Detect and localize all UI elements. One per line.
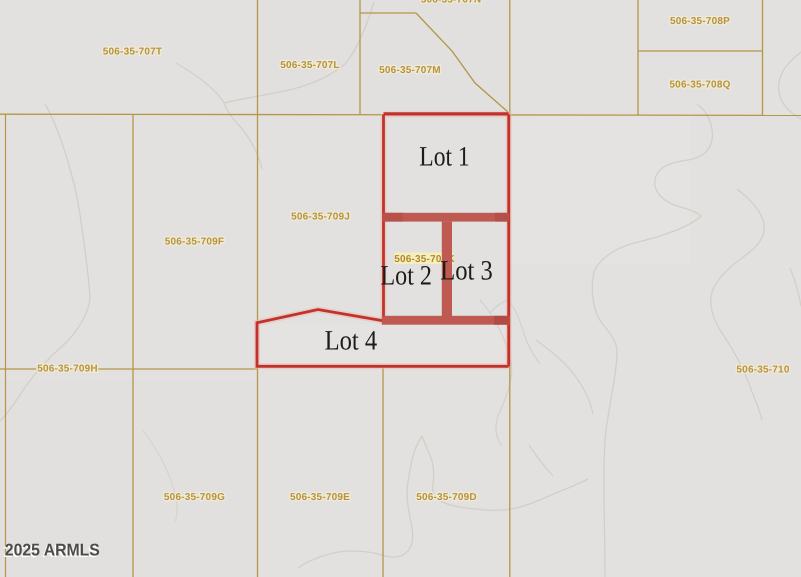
svg-text:506-35-707N: 506-35-707N: [421, 0, 482, 6]
svg-text:2025 ARMLS: 2025 ARMLS: [5, 540, 100, 559]
svg-text:Lot 4: Lot 4: [325, 325, 378, 356]
svg-text:506-35-709D: 506-35-709D: [416, 492, 477, 503]
svg-text:Lot 1: Lot 1: [419, 142, 469, 173]
svg-text:Lot 2: Lot 2: [381, 261, 432, 292]
svg-text:506-35-709E: 506-35-709E: [290, 492, 350, 503]
svg-text:506-35-709F: 506-35-709F: [165, 237, 224, 248]
svg-text:506-35-708Q: 506-35-708Q: [669, 80, 730, 91]
svg-text:506-35-709G: 506-35-709G: [164, 492, 225, 503]
svg-text:506-35-709H: 506-35-709H: [37, 364, 98, 375]
svg-text:506-35-707M: 506-35-707M: [379, 65, 441, 76]
svg-text:Lot 3: Lot 3: [440, 255, 493, 286]
svg-text:506-35-707L: 506-35-707L: [280, 60, 339, 71]
svg-text:506-35-709J: 506-35-709J: [291, 212, 350, 223]
svg-text:506-35-710: 506-35-710: [736, 365, 789, 376]
svg-text:506-35-708P: 506-35-708P: [670, 16, 730, 27]
svg-text:506-35-707T: 506-35-707T: [103, 47, 162, 58]
